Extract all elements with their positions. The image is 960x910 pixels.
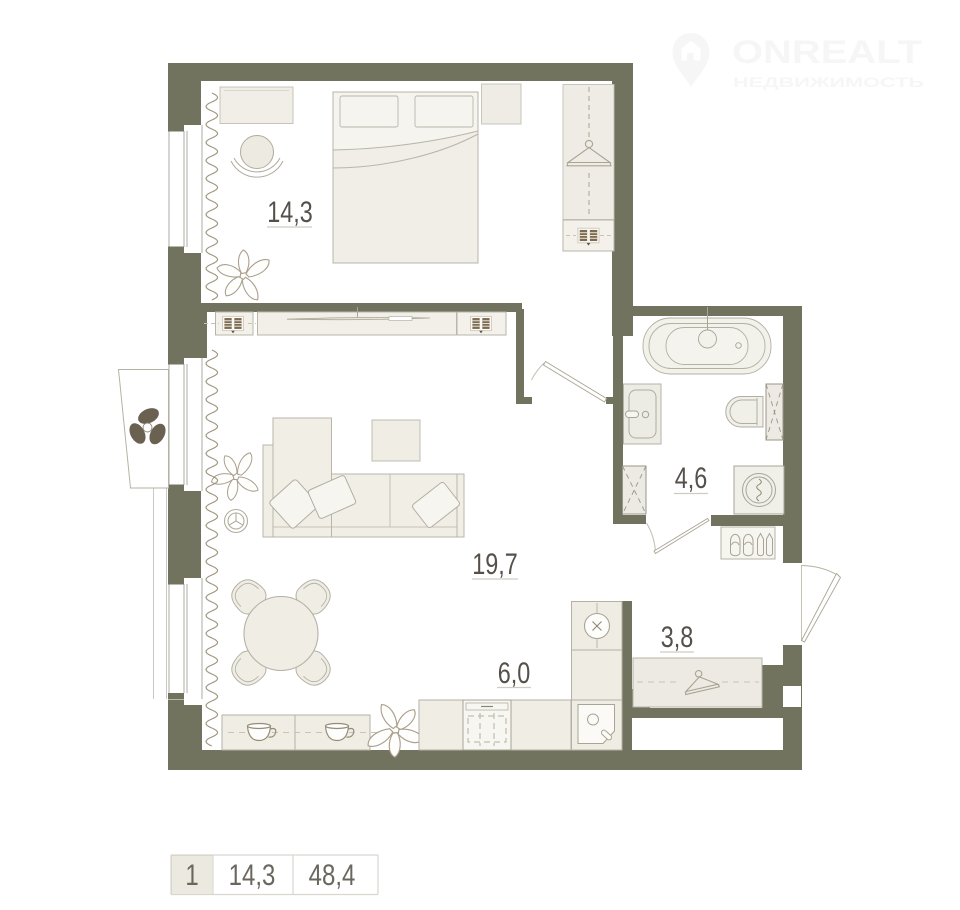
svg-text:4,6: 4,6 <box>675 461 708 494</box>
svg-text:48,4: 48,4 <box>309 857 356 891</box>
svg-text:1: 1 <box>185 857 198 891</box>
svg-text:3,8: 3,8 <box>661 620 694 653</box>
svg-text:14,3: 14,3 <box>267 195 313 228</box>
svg-text:ONREALT: ONREALT <box>732 34 923 70</box>
svg-text:14,3: 14,3 <box>229 857 276 891</box>
svg-text:19,7: 19,7 <box>472 547 518 580</box>
svg-text:6,0: 6,0 <box>498 656 531 689</box>
svg-text:НЕДВИЖИМОСТЬ: НЕДВИЖИМОСТЬ <box>733 74 924 90</box>
